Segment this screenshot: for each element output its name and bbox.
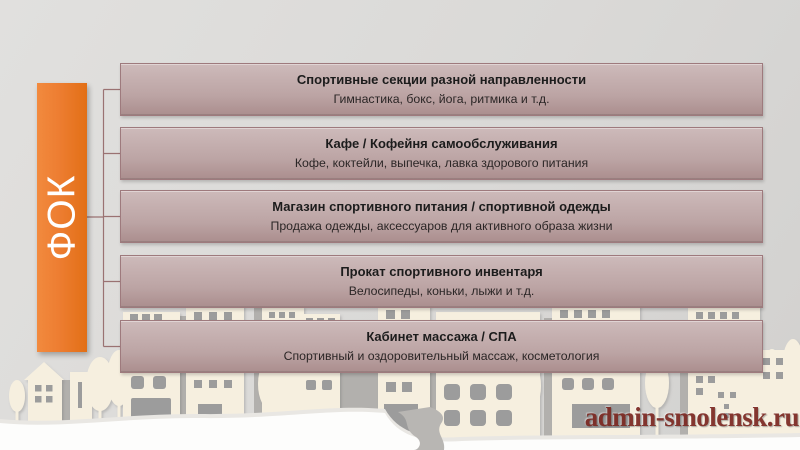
service-title: Кафе / Кофейня самообслуживания: [325, 137, 557, 151]
service-subtitle: Кофе, коктейли, выпечка, лавка здорового…: [295, 157, 588, 170]
service-title: Кабинет массажа / СПА: [366, 330, 516, 344]
service-box-spa: Кабинет массажа / СПА Спортивный и оздор…: [120, 320, 763, 373]
service-box-rental: Прокат спортивного инвентаря Велосипеды,…: [120, 255, 763, 308]
service-box-cafe: Кафе / Кофейня самообслуживания Кофе, ко…: [120, 127, 763, 180]
service-box-shop: Магазин спортивного питания / спортивной…: [120, 190, 763, 243]
service-subtitle: Гимнастика, бокс, йога, ритмика и т.д.: [334, 93, 550, 106]
service-box-sports-sections: Спортивные секции разной направленности …: [120, 63, 763, 116]
service-title: Прокат спортивного инвентаря: [340, 265, 542, 279]
fok-bar-label: ФОК: [43, 175, 82, 261]
slide-canvas: ФОК Спортивные секции разной направленно…: [0, 0, 800, 450]
fok-bar: ФОК: [37, 83, 87, 352]
service-subtitle: Велосипеды, коньки, лыжи и т.д.: [349, 285, 535, 298]
service-subtitle: Продажа одежды, аксессуаров для активног…: [270, 220, 612, 233]
service-title: Магазин спортивного питания / спортивной…: [272, 200, 611, 214]
service-subtitle: Спортивный и оздоровительный массаж, кос…: [284, 350, 600, 363]
service-title: Спортивные секции разной направленности: [297, 73, 586, 87]
watermark-text: admin-smolensk.ru: [585, 404, 799, 431]
